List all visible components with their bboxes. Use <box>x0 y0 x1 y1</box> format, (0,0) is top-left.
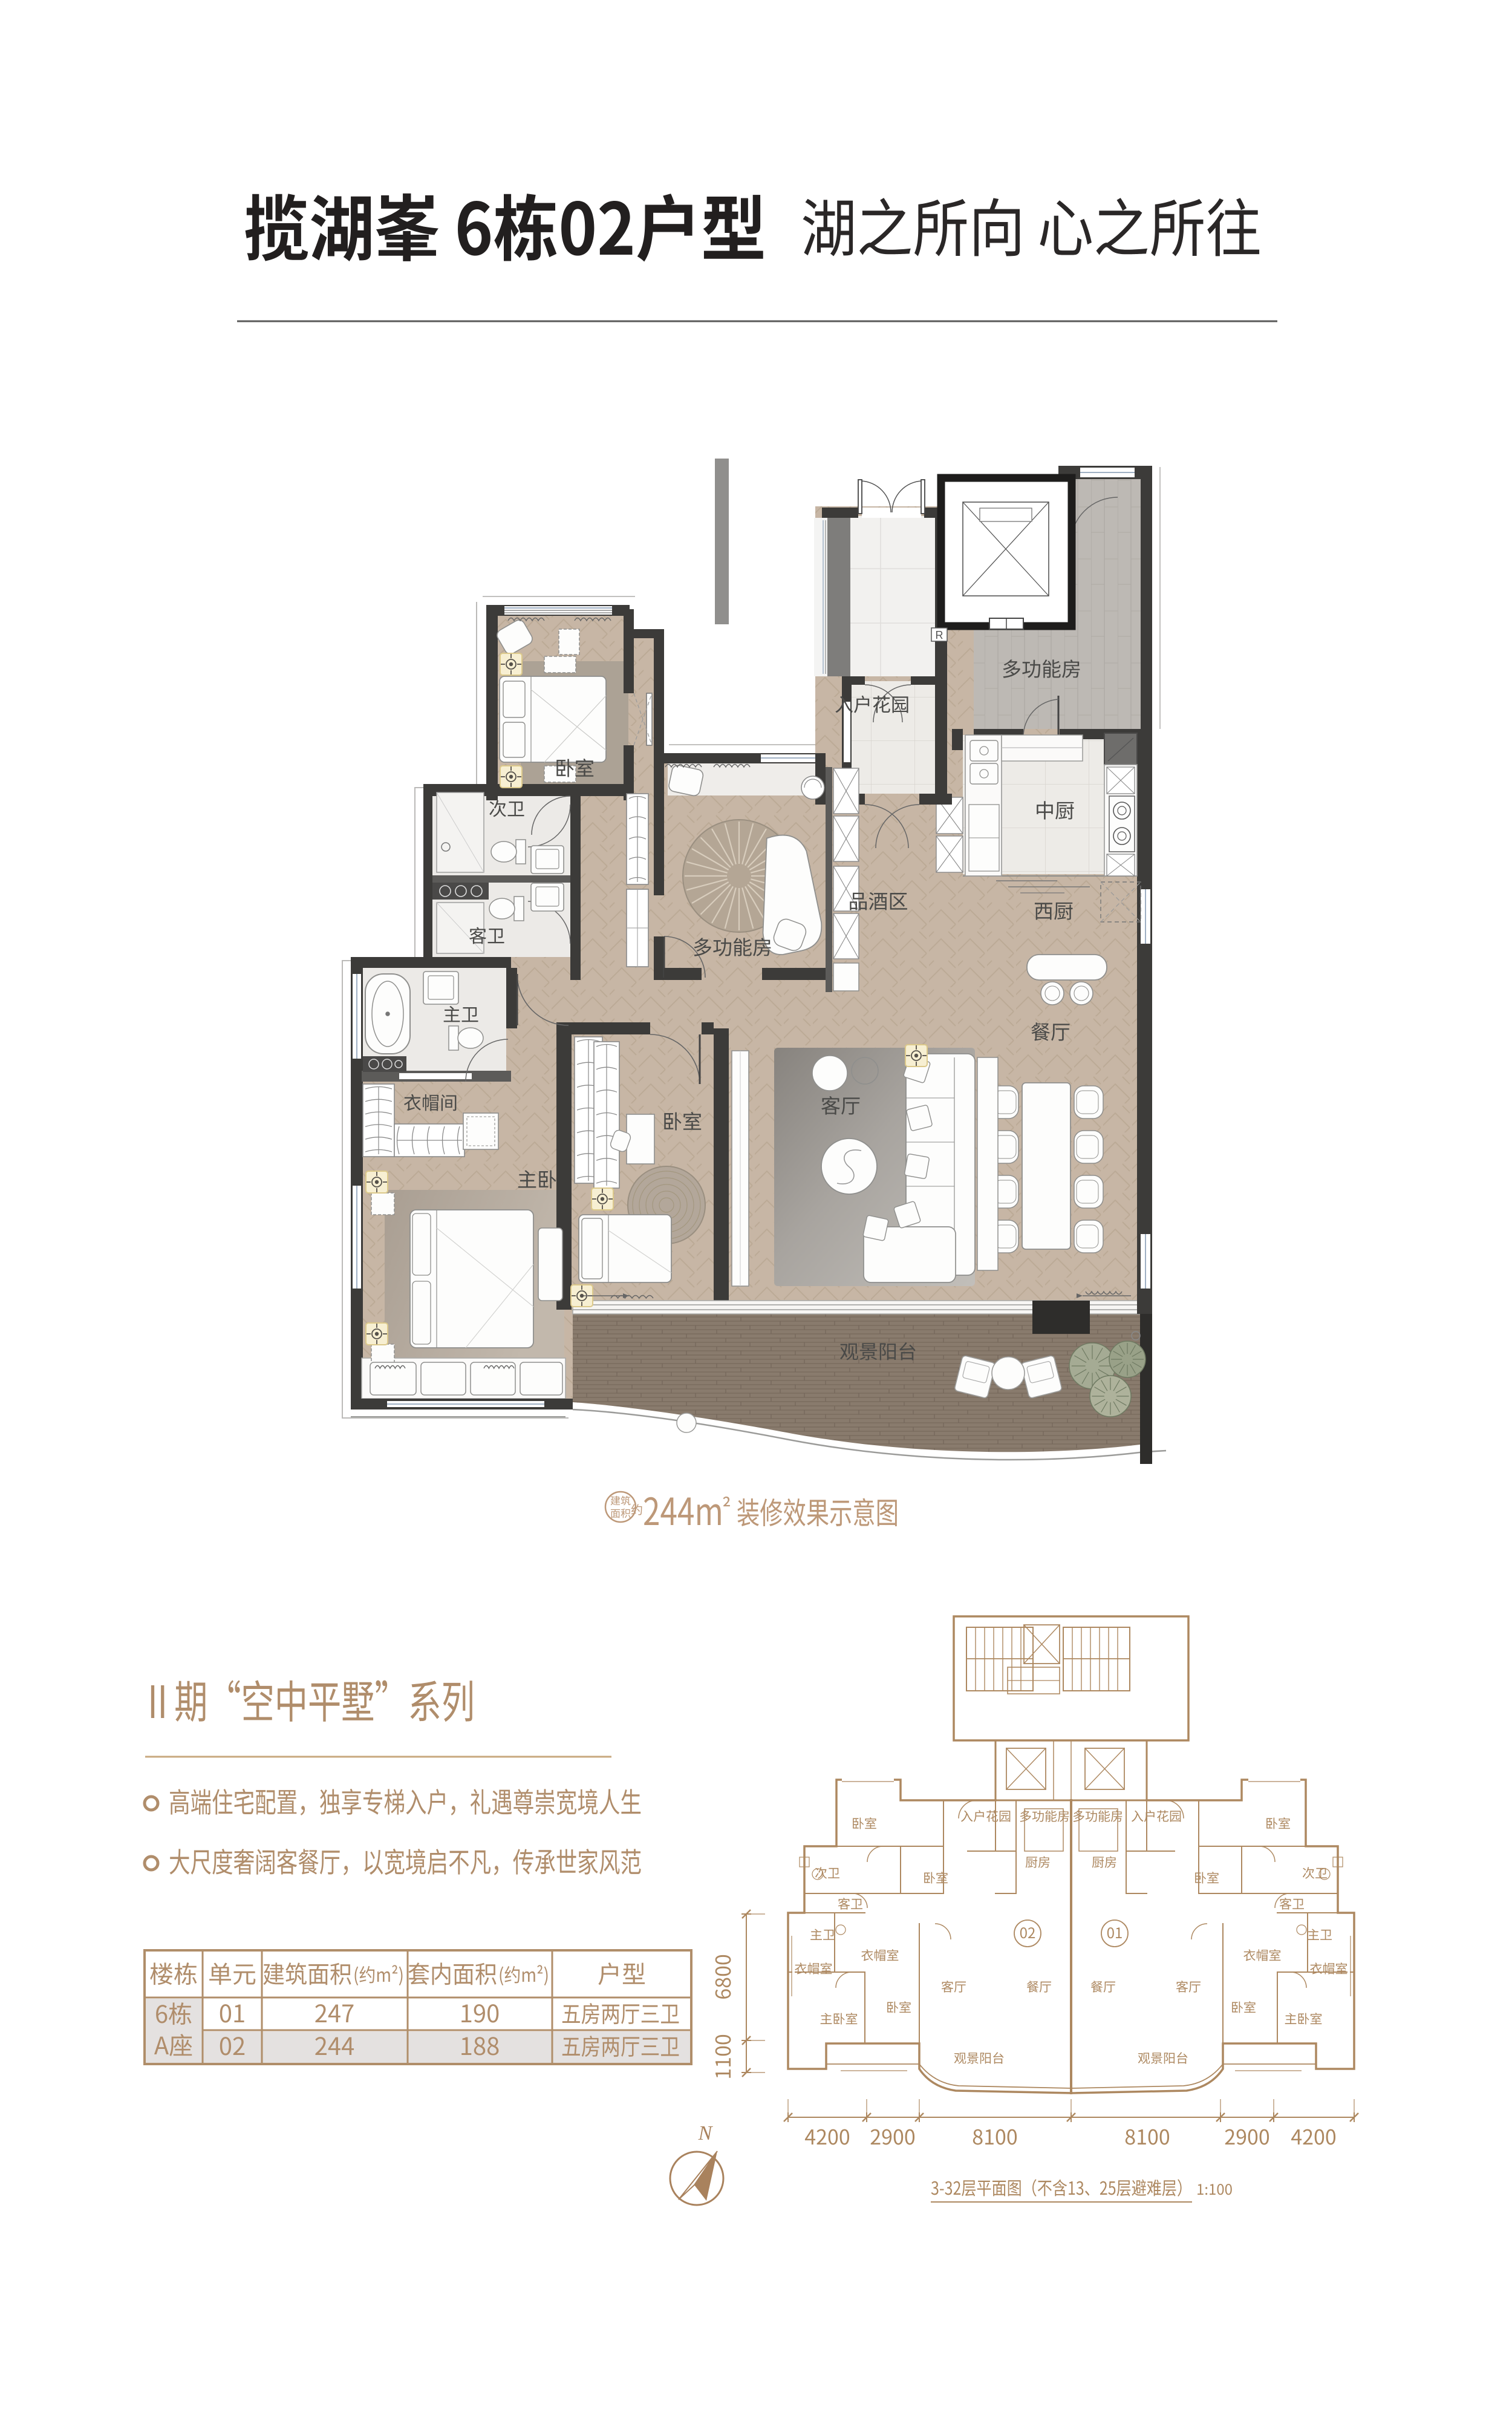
svg-text:R: R <box>936 629 943 641</box>
svg-text:N: N <box>698 2122 714 2144</box>
